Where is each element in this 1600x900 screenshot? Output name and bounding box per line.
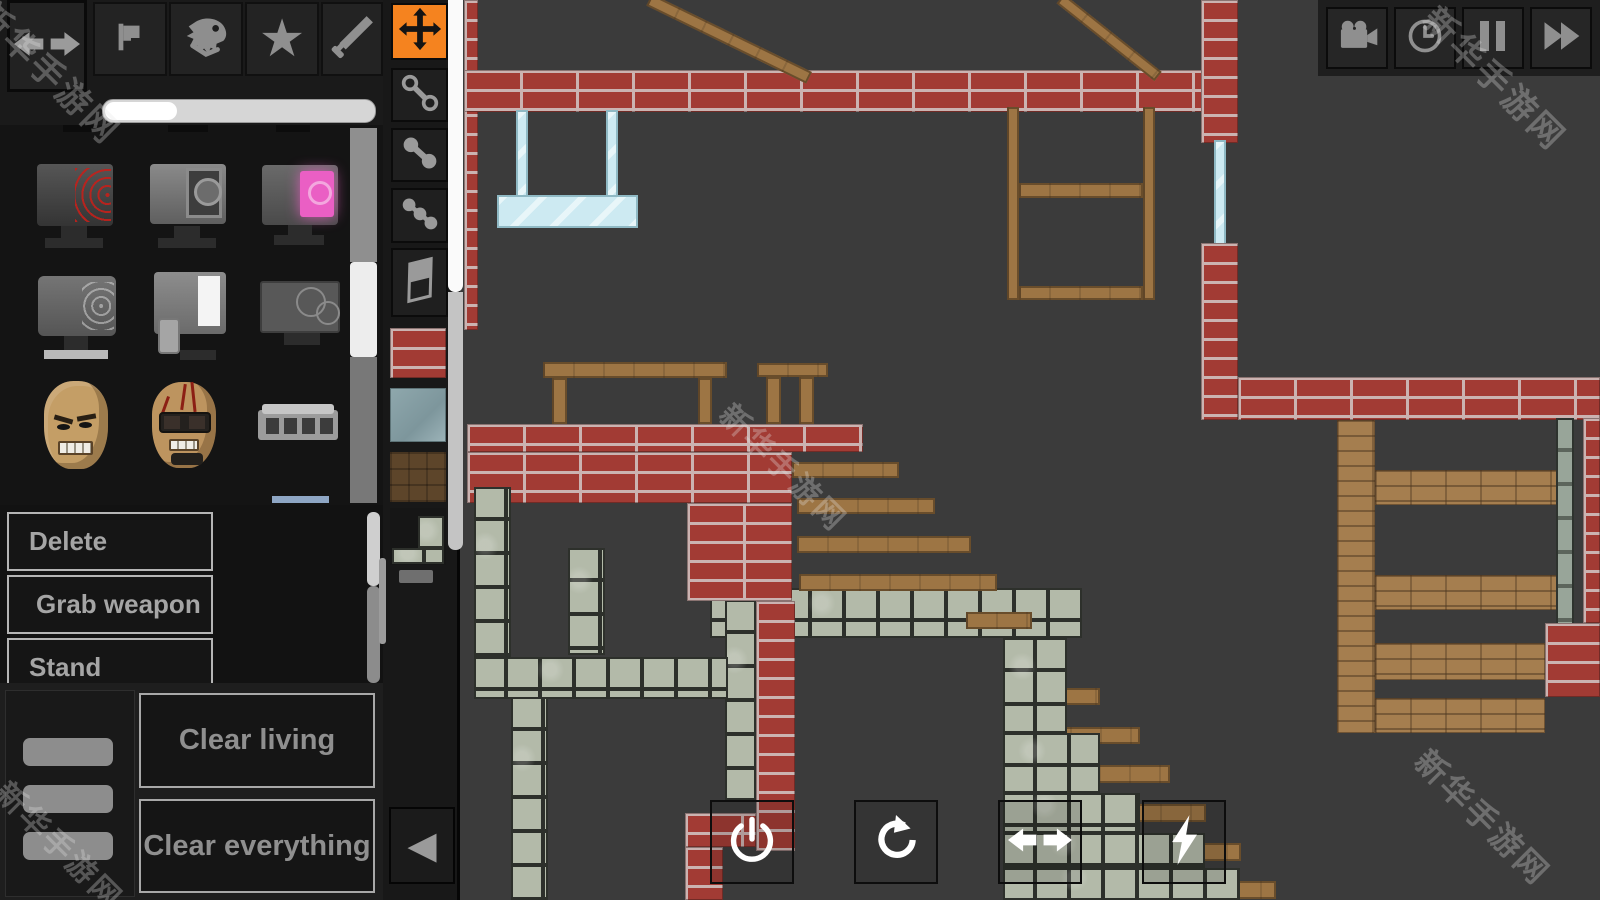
star-icon: ★ [259, 13, 306, 65]
power-button[interactable] [710, 800, 794, 884]
clear-everything-button[interactable]: Clear everything [139, 799, 375, 893]
frame-rung[interactable] [1019, 286, 1143, 300]
collapse-panel-button[interactable]: ◀ [389, 807, 455, 884]
tan-arm[interactable] [1375, 698, 1545, 733]
clear-living-label: Clear living [179, 724, 335, 757]
brick-block-bottom-right[interactable] [1545, 623, 1600, 697]
clear-everything-label: Clear everything [143, 830, 370, 863]
small-table-top[interactable] [757, 363, 828, 377]
tan-arm[interactable] [1375, 643, 1545, 680]
chain-link-tool-button[interactable] [391, 68, 448, 122]
glass-hanger-post[interactable] [606, 110, 618, 200]
item-stub [276, 125, 310, 132]
small-table-leg[interactable] [766, 377, 781, 424]
frame-rung[interactable] [1019, 183, 1143, 198]
size-slider[interactable] [102, 99, 376, 123]
chain-link-icon [400, 73, 440, 118]
item-human-head[interactable] [44, 381, 110, 471]
context-menu-item-delete[interactable]: Delete [7, 512, 213, 571]
collapse-left-icon: ◀ [407, 827, 436, 865]
grid-hscroll-indicator[interactable] [272, 496, 329, 503]
mini-scrollbar[interactable] [379, 558, 386, 644]
chin-guard [171, 453, 203, 465]
move-tool-button[interactable] [391, 3, 448, 60]
context-menu: Delete Grab weapon Stand [0, 505, 383, 683]
material-wood-tile[interactable] [390, 452, 446, 502]
item-machine-pink-screen[interactable] [262, 163, 342, 245]
flip-button[interactable] [998, 800, 1082, 884]
category-star-button[interactable]: ★ [245, 2, 319, 76]
item-machine-flat-device[interactable] [260, 275, 342, 353]
item-machine-coil[interactable] [38, 272, 118, 360]
item-head-with-goggles[interactable] [152, 382, 218, 470]
size-slider-thumb[interactable] [105, 102, 177, 120]
menu-item-label: Stand [29, 652, 101, 683]
small-table-leg[interactable] [799, 377, 814, 424]
fast-forward-icon [1539, 18, 1583, 59]
category-creature-button[interactable] [169, 2, 243, 76]
item-metal-device[interactable] [258, 404, 340, 442]
item-stub [168, 125, 208, 132]
sword-icon [329, 14, 375, 65]
eye [79, 422, 92, 428]
glass-pane[interactable] [1214, 140, 1226, 246]
eye [57, 424, 70, 430]
clear-living-button[interactable]: Clear living [139, 693, 375, 788]
camera-icon [1335, 18, 1379, 59]
category-flag-button[interactable] [93, 2, 167, 76]
stone-pillar-mid[interactable] [568, 548, 605, 655]
brick-platform-body[interactable] [467, 452, 792, 503]
grid-scrollbar-upper[interactable] [350, 128, 377, 262]
stone-beam[interactable] [474, 657, 728, 699]
lightning-icon [1158, 814, 1210, 871]
material-metal-tile[interactable] [390, 508, 446, 565]
menu-item-label: Grab weapon [36, 589, 201, 620]
left-panel: ★ [0, 0, 383, 900]
item-machine-white-panel[interactable] [150, 270, 230, 362]
flag-icon [111, 18, 149, 61]
rigid-joint-icon [400, 133, 440, 178]
table-leg[interactable] [552, 378, 567, 424]
item-stub [63, 125, 97, 132]
pan-history-button[interactable] [7, 0, 87, 92]
pause-button[interactable] [1462, 7, 1524, 69]
game-screen: ★ [0, 0, 1600, 900]
ball-chain-icon [400, 193, 440, 238]
grin [169, 439, 199, 451]
wooden-step[interactable] [797, 536, 971, 553]
action-panel: Clear living Clear everything [0, 683, 398, 900]
eraser-icon [398, 254, 442, 311]
tan-arm[interactable] [1375, 470, 1573, 505]
move-arrows-icon [397, 6, 443, 57]
power-icon [726, 814, 778, 871]
tool-palette-strip: ◀ [383, 0, 460, 900]
palette-scrollbar-track[interactable] [448, 292, 463, 550]
grid-scrollbar-lower[interactable] [350, 357, 377, 503]
item-machine-camera-lens[interactable] [150, 160, 228, 248]
stone-column[interactable] [725, 600, 756, 800]
stone-pillar-low[interactable] [511, 697, 548, 900]
stone-stair-block[interactable] [1003, 638, 1067, 733]
frame-post[interactable] [1143, 107, 1155, 300]
brick-column-mid-top[interactable] [1201, 0, 1238, 143]
playback-toolbar [1318, 0, 1600, 76]
brick-ceiling[interactable] [464, 70, 1238, 112]
metal-tile-detail [392, 548, 444, 564]
rotate-ccw-icon [871, 815, 921, 870]
dino-skull-icon [181, 15, 231, 64]
stone-pillar-tall[interactable] [474, 487, 511, 683]
stone-post-right[interactable] [1556, 418, 1574, 628]
ball-chain-tool-button[interactable] [391, 188, 448, 243]
wooden-step[interactable] [792, 462, 899, 478]
layer-bar[interactable] [23, 785, 113, 813]
item-machine-red-emitter[interactable] [37, 160, 115, 248]
tan-arm[interactable] [1375, 575, 1573, 610]
layer-bar[interactable] [23, 738, 113, 766]
camera-button[interactable] [1326, 7, 1388, 69]
stone-stair-block[interactable] [1003, 733, 1100, 793]
rigid-joint-tool-button[interactable] [391, 128, 448, 182]
eraser-tool-button[interactable] [391, 248, 448, 317]
grid-scrollbar-thumb[interactable] [350, 262, 377, 357]
brick-platform-top[interactable] [467, 424, 863, 452]
energy-button[interactable] [1142, 800, 1226, 884]
layer-bar[interactable] [23, 832, 113, 860]
glass-hanger-post[interactable] [516, 110, 528, 200]
wooden-step[interactable] [966, 612, 1032, 629]
left-right-arrows-icon [1008, 823, 1072, 862]
frame-post[interactable] [1007, 107, 1019, 300]
tan-column[interactable] [1337, 420, 1375, 733]
clock-icon [1405, 16, 1445, 61]
wooden-step[interactable] [797, 498, 935, 514]
time-button[interactable] [1394, 7, 1456, 69]
fast-forward-button[interactable] [1530, 7, 1592, 69]
palette-scrollbar-thumb[interactable] [448, 0, 463, 292]
table-top[interactable] [543, 362, 727, 378]
table-leg[interactable] [698, 378, 712, 424]
pan-arrows-icon [14, 27, 80, 66]
category-toolbar: ★ [0, 0, 383, 125]
layer-box [5, 690, 135, 897]
category-weapon-button[interactable] [321, 2, 383, 76]
context-menu-item-grab-weapon[interactable]: Grab weapon [7, 575, 213, 634]
grin [58, 441, 93, 455]
brick-strip-right-edge[interactable] [1583, 418, 1600, 623]
rotate-button[interactable] [854, 800, 938, 884]
wooden-step[interactable] [799, 574, 997, 591]
item-library-grid [0, 125, 383, 505]
brick-column-upper[interactable] [687, 503, 792, 601]
brick-column-left-edge[interactable] [464, 0, 478, 330]
goggle-lens [164, 416, 180, 429]
glass-platform[interactable] [497, 195, 638, 228]
material-glass-tile[interactable] [390, 388, 446, 442]
material-brick-tile[interactable] [390, 328, 446, 378]
goggle-lens [189, 416, 205, 429]
material-stub-tile[interactable] [399, 570, 433, 583]
brick-column-mid-bottom[interactable] [1201, 243, 1238, 420]
menu-item-label: Delete [29, 526, 107, 557]
brick-wall-right[interactable] [1238, 377, 1600, 420]
pause-icon [1476, 17, 1510, 60]
